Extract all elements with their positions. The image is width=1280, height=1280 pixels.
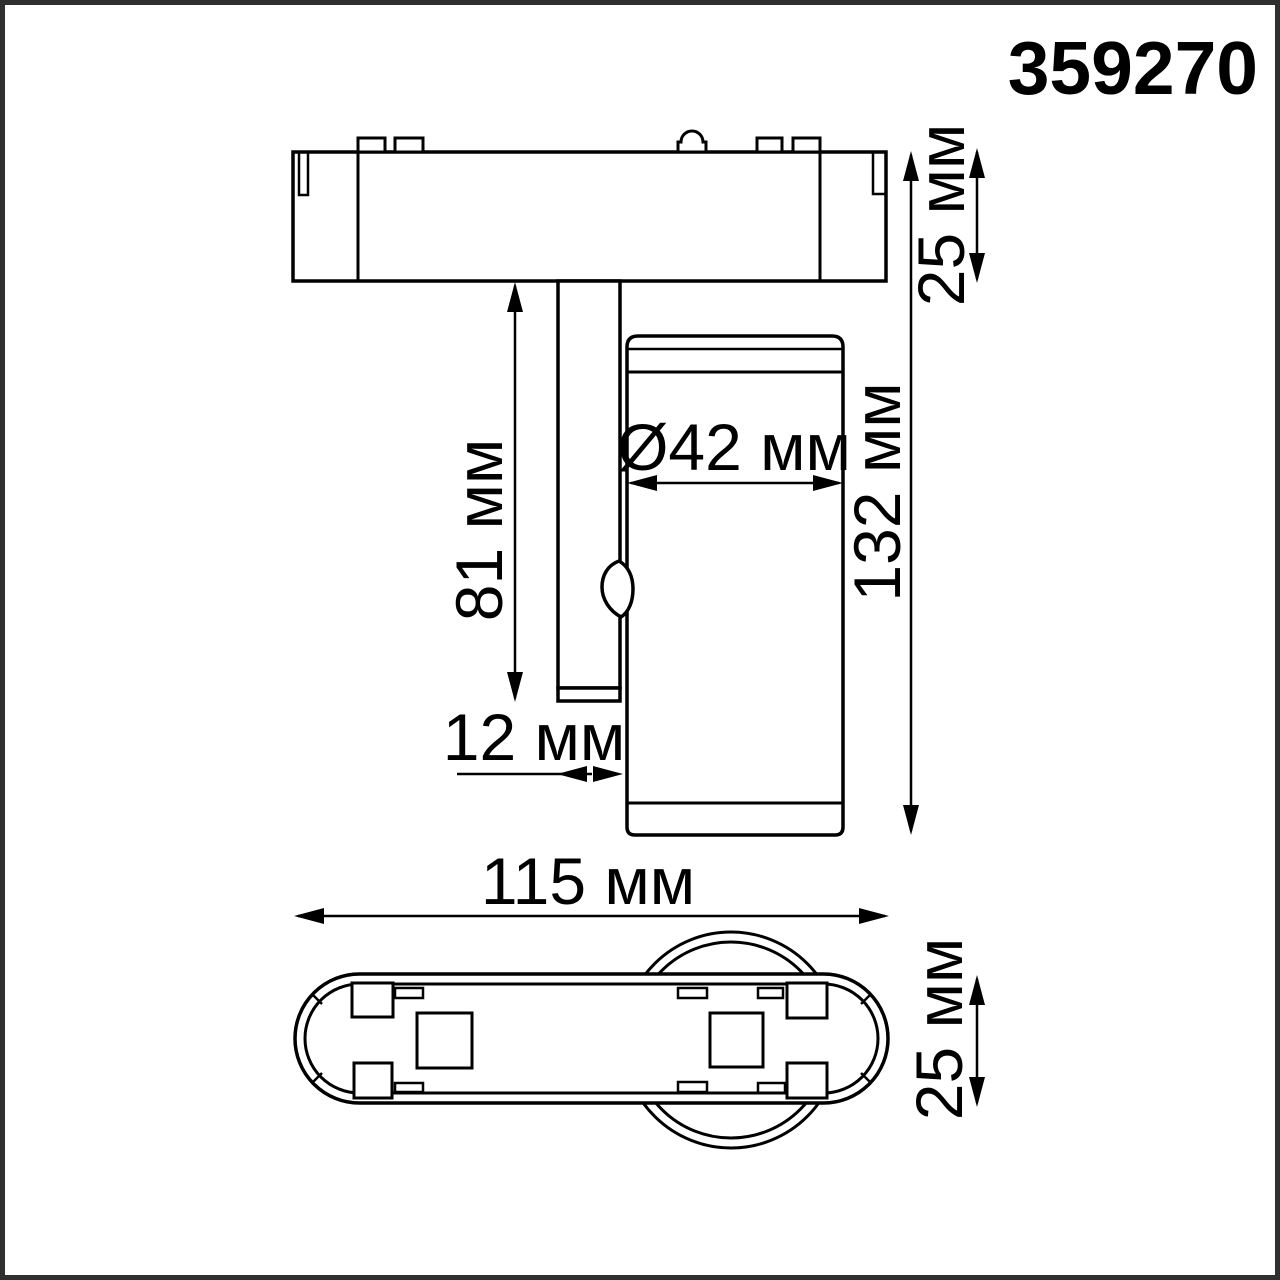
magnet-pad: [710, 1013, 763, 1067]
dimension-stem-length: 81 мм: [442, 282, 523, 702]
contact-tab: [358, 138, 385, 152]
plan-view: 115 мм 25 мм: [294, 844, 985, 1148]
locking-knob-dome: [678, 131, 706, 152]
magnet-pad: [417, 1013, 472, 1068]
arrowhead-down: [507, 672, 523, 702]
dimension-body-length: 115 мм: [294, 844, 889, 924]
side-view: 25 мм 132 мм 81 мм Ø42 мм 12: [293, 124, 985, 835]
stem-body: [558, 281, 620, 688]
body-width-label: 25 мм: [902, 938, 976, 1121]
arrowhead-right: [859, 908, 889, 924]
base-height-label: 25 мм: [904, 124, 978, 307]
arrowhead-left: [294, 908, 324, 924]
contact-tab: [793, 138, 820, 152]
stem-length-label: 81 мм: [442, 439, 516, 622]
stem: [558, 281, 620, 701]
stem-width-label: 12 мм: [443, 700, 626, 774]
base-outline: [293, 152, 886, 281]
fixing-pad: [354, 1063, 392, 1098]
technical-drawing-page: 359270: [0, 0, 1280, 1280]
dimension-body-width: 25 мм: [902, 938, 985, 1121]
arrowhead-up: [507, 282, 523, 312]
contact-tab: [757, 138, 782, 152]
fixing-pad: [787, 983, 827, 1018]
dimension-drawing: 359270: [0, 0, 1280, 1280]
body-length-label: 115 мм: [481, 844, 695, 918]
dimension-base-height: 25 мм: [904, 124, 985, 307]
dimension-stem-width: 12 мм: [443, 700, 626, 782]
fixing-pad: [787, 1063, 827, 1098]
fixing-pad: [352, 983, 393, 1017]
dimension-head-diameter: Ø42 мм: [617, 410, 851, 491]
track-adapter-base: [293, 131, 886, 281]
product-code: 359270: [1008, 26, 1258, 110]
contact-tab: [395, 138, 423, 152]
arrowhead-down: [903, 805, 919, 835]
head-diameter-label: Ø42 мм: [617, 410, 851, 484]
total-height-label: 132 мм: [840, 382, 914, 601]
